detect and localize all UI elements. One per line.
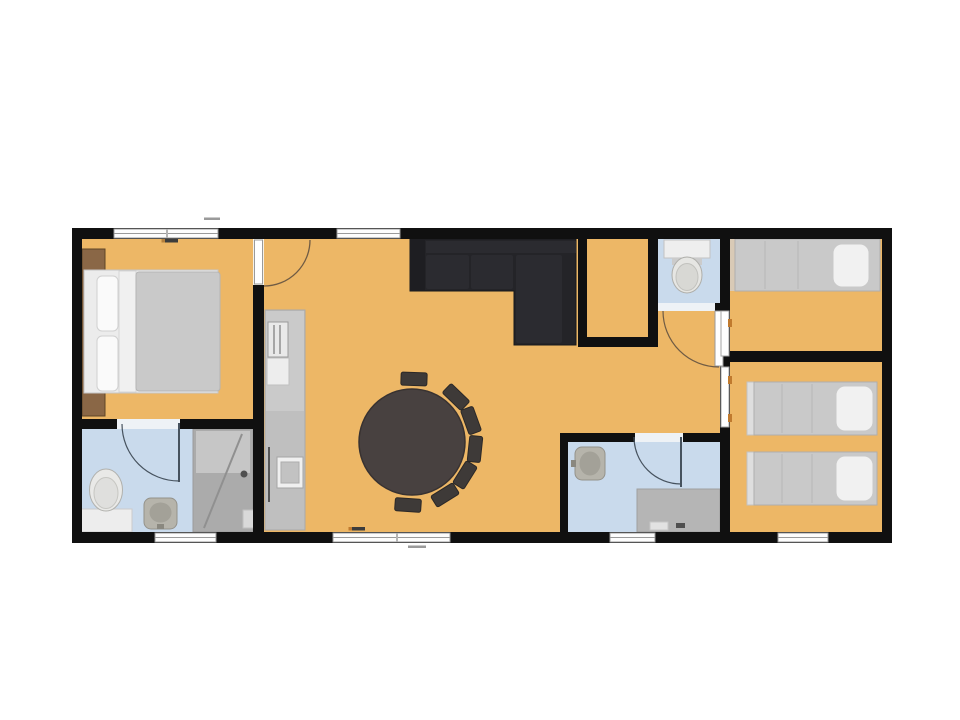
dimension-mark-top bbox=[204, 218, 220, 221]
dimension-mark-bottom bbox=[408, 546, 426, 549]
wall-left bbox=[72, 228, 82, 543]
door-bedroom-3-tick-b bbox=[728, 414, 732, 422]
door-bedroom-3-tick bbox=[728, 376, 732, 384]
door-bathroom-2-opening bbox=[635, 433, 683, 442]
sofa-seat-2 bbox=[471, 255, 513, 289]
wall-bedrooms-divider bbox=[720, 351, 892, 362]
door-master-panel bbox=[255, 240, 263, 284]
dining-chair-7 bbox=[395, 498, 422, 513]
single-bed-3-pillow bbox=[836, 456, 873, 501]
sofa-chaise-seat bbox=[516, 255, 562, 343]
wc-toilet-seat bbox=[676, 264, 698, 291]
double-bed-pillow-2 bbox=[97, 336, 118, 391]
toilet-1-seat bbox=[94, 478, 118, 509]
dimension-mark-living-arrow bbox=[352, 527, 365, 531]
sink-1-tap bbox=[157, 524, 164, 529]
dining-chair-1 bbox=[401, 372, 427, 386]
dimension-mark-bedroom-arrow bbox=[165, 239, 178, 243]
wall-nook-left bbox=[578, 238, 587, 347]
dimension-mark-living-dot bbox=[349, 527, 353, 531]
wall-nook-bottom bbox=[578, 337, 658, 347]
shower-2-control bbox=[650, 522, 668, 530]
toilet-1-counter bbox=[80, 509, 132, 532]
single-bed-1-pillow bbox=[833, 244, 869, 287]
shower-2-drain bbox=[676, 523, 685, 528]
floorplan-svg bbox=[0, 0, 960, 720]
sofa-left-arm bbox=[410, 239, 425, 291]
kitchen-worktop-block bbox=[267, 358, 289, 385]
single-bed-3-headboard bbox=[747, 452, 754, 505]
sofa-seat-1 bbox=[426, 255, 469, 289]
kitchen-sink-basin bbox=[281, 462, 299, 483]
sink-2-basin bbox=[580, 452, 601, 476]
door-wc-opening bbox=[658, 303, 715, 311]
double-bed-pillow-1 bbox=[97, 276, 118, 331]
kitchen-appliance bbox=[268, 322, 288, 357]
single-bed-1-headboard bbox=[730, 239, 735, 291]
wall-right bbox=[882, 228, 892, 543]
single-bed-2-pillow bbox=[836, 386, 873, 431]
door-bathroom-1-opening bbox=[117, 419, 180, 429]
dining-table bbox=[359, 389, 465, 495]
wall-nook-right bbox=[648, 238, 658, 347]
floorplan-page bbox=[0, 0, 960, 720]
door-bedroom-2-tick bbox=[728, 319, 732, 327]
dining-chair-4 bbox=[467, 435, 483, 462]
dimension-mark-bedroom-dot bbox=[162, 239, 166, 243]
sink-2-tap bbox=[571, 460, 576, 467]
sofa-back-band bbox=[426, 241, 576, 253]
single-bed-2-headboard bbox=[747, 382, 754, 435]
wall-bathroom-2-left bbox=[560, 433, 568, 532]
double-bed-sheet-fold bbox=[119, 271, 136, 392]
shower-1-head bbox=[241, 471, 248, 478]
sink-1-basin bbox=[150, 503, 172, 523]
double-bed-duvet bbox=[136, 272, 220, 391]
door-bedroom-2-sliding-panel bbox=[721, 311, 729, 356]
shower-1-inner-panel bbox=[196, 431, 250, 473]
door-bedroom-3-sliding-panel bbox=[721, 367, 729, 427]
wc-cistern bbox=[664, 240, 710, 258]
